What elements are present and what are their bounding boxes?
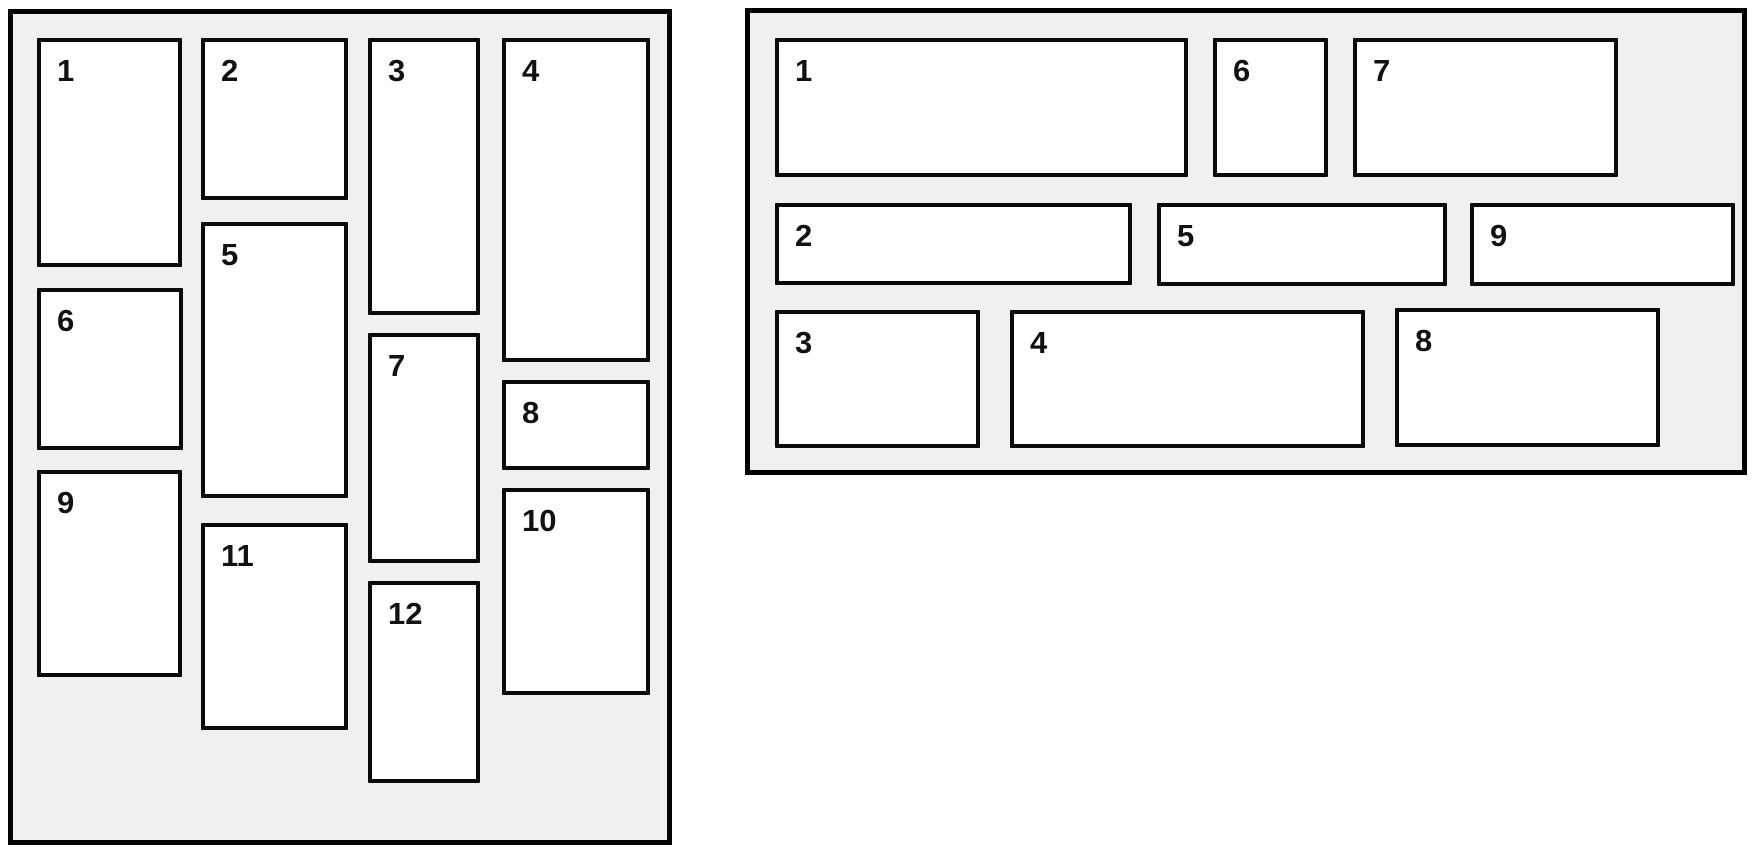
rows-panel-box-9: 9 — [1470, 203, 1735, 286]
masonry-columns-panel-box-5: 5 — [201, 222, 348, 498]
masonry-columns-panel-box-9: 9 — [37, 470, 182, 677]
masonry-columns-panel-box-3: 3 — [368, 38, 480, 315]
rows-panel-box-4: 4 — [1010, 310, 1365, 448]
masonry-columns-panel-box-8: 8 — [502, 380, 650, 470]
masonry-columns-panel-box-6: 6 — [37, 288, 183, 450]
layout-comparison-diagram: 123456789101112167259348 — [0, 0, 1755, 852]
masonry-columns-panel-box-4: 4 — [502, 38, 650, 362]
rows-panel-box-2: 2 — [775, 203, 1132, 285]
rows-panel-box-7: 7 — [1353, 38, 1618, 177]
rows-panel-box-5: 5 — [1157, 203, 1447, 286]
masonry-columns-panel-box-10: 10 — [502, 488, 650, 695]
rows-panel-box-1: 1 — [775, 38, 1188, 177]
rows-panel-box-6: 6 — [1213, 38, 1328, 177]
masonry-columns-panel-box-7: 7 — [368, 333, 480, 563]
rows-panel-box-3: 3 — [775, 310, 980, 448]
masonry-columns-panel: 123456789101112 — [8, 9, 672, 845]
masonry-columns-panel-box-12: 12 — [368, 581, 480, 783]
rows-panel: 167259348 — [745, 8, 1747, 475]
rows-panel-box-8: 8 — [1395, 308, 1660, 447]
masonry-columns-panel-box-2: 2 — [201, 38, 348, 200]
masonry-columns-panel-box-11: 11 — [201, 523, 348, 730]
masonry-columns-panel-box-1: 1 — [37, 38, 182, 267]
